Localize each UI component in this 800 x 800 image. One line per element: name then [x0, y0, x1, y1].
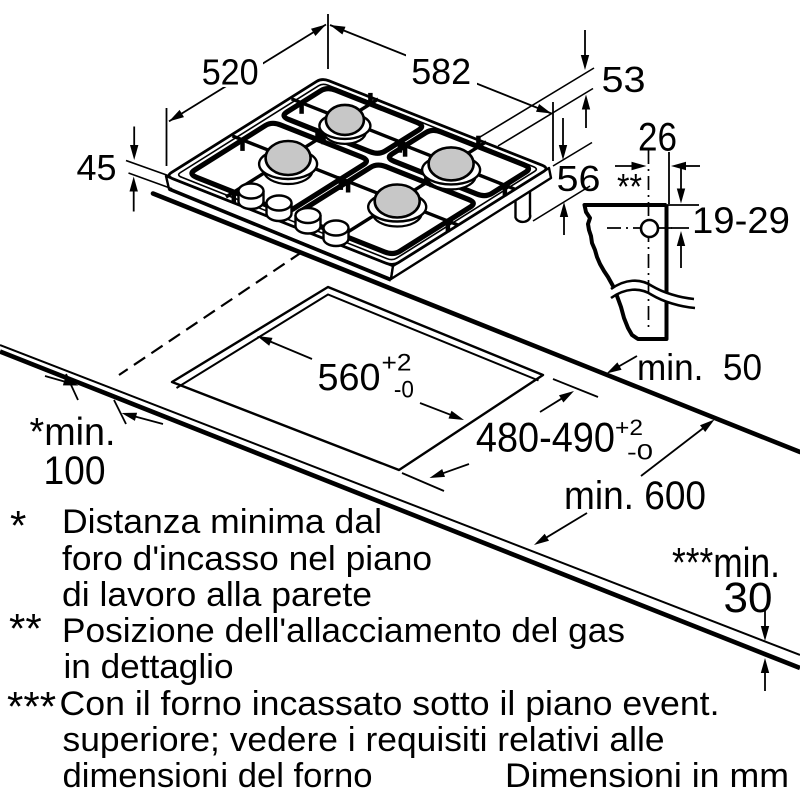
svg-text:480-490: 480-490 [476, 414, 615, 461]
svg-text:***: *** [7, 683, 56, 730]
svg-text:+2: +2 [615, 415, 643, 440]
svg-text:*min.: *min. [30, 411, 116, 454]
svg-text:in dettaglio: in dettaglio [64, 648, 234, 686]
svg-text:superiore; vedere i requisiti: superiore; vedere i requisiti relativi a… [63, 721, 665, 759]
svg-text:-0: -0 [627, 440, 653, 465]
svg-text:*: * [10, 502, 26, 549]
svg-text:min. 600: min. 600 [564, 474, 706, 518]
svg-text:30: 30 [724, 574, 773, 622]
svg-text:520: 520 [202, 51, 259, 92]
svg-text:Distanza minima dal: Distanza minima dal [62, 503, 382, 541]
svg-text:Posizione dell'allacciamento d: Posizione dell'allacciamento del gas [62, 612, 625, 650]
svg-text:582: 582 [411, 51, 471, 92]
svg-text:**: ** [617, 166, 642, 207]
svg-text:45: 45 [77, 147, 117, 188]
svg-text:+2: +2 [382, 350, 412, 377]
svg-text:100: 100 [44, 449, 106, 493]
svg-text:56: 56 [557, 158, 601, 199]
svg-text:**: ** [9, 605, 42, 652]
svg-text:Dimensioni in mm: Dimensioni in mm [505, 757, 789, 795]
svg-text:53: 53 [602, 59, 646, 100]
svg-text:foro d'incasso nel piano: foro d'incasso nel piano [62, 540, 432, 578]
svg-text:26: 26 [638, 116, 677, 160]
svg-text:Con il forno incassato sotto i: Con il forno incassato sotto il piano ev… [60, 685, 720, 723]
svg-text:dimensioni del forno: dimensioni del forno [63, 757, 373, 795]
svg-text:560: 560 [318, 357, 381, 399]
svg-text:di lavoro alla parete: di lavoro alla parete [62, 576, 372, 614]
svg-text:19-29: 19-29 [692, 200, 790, 241]
svg-text:-0: -0 [394, 376, 414, 403]
svg-text:min. 50: min. 50 [637, 347, 762, 388]
